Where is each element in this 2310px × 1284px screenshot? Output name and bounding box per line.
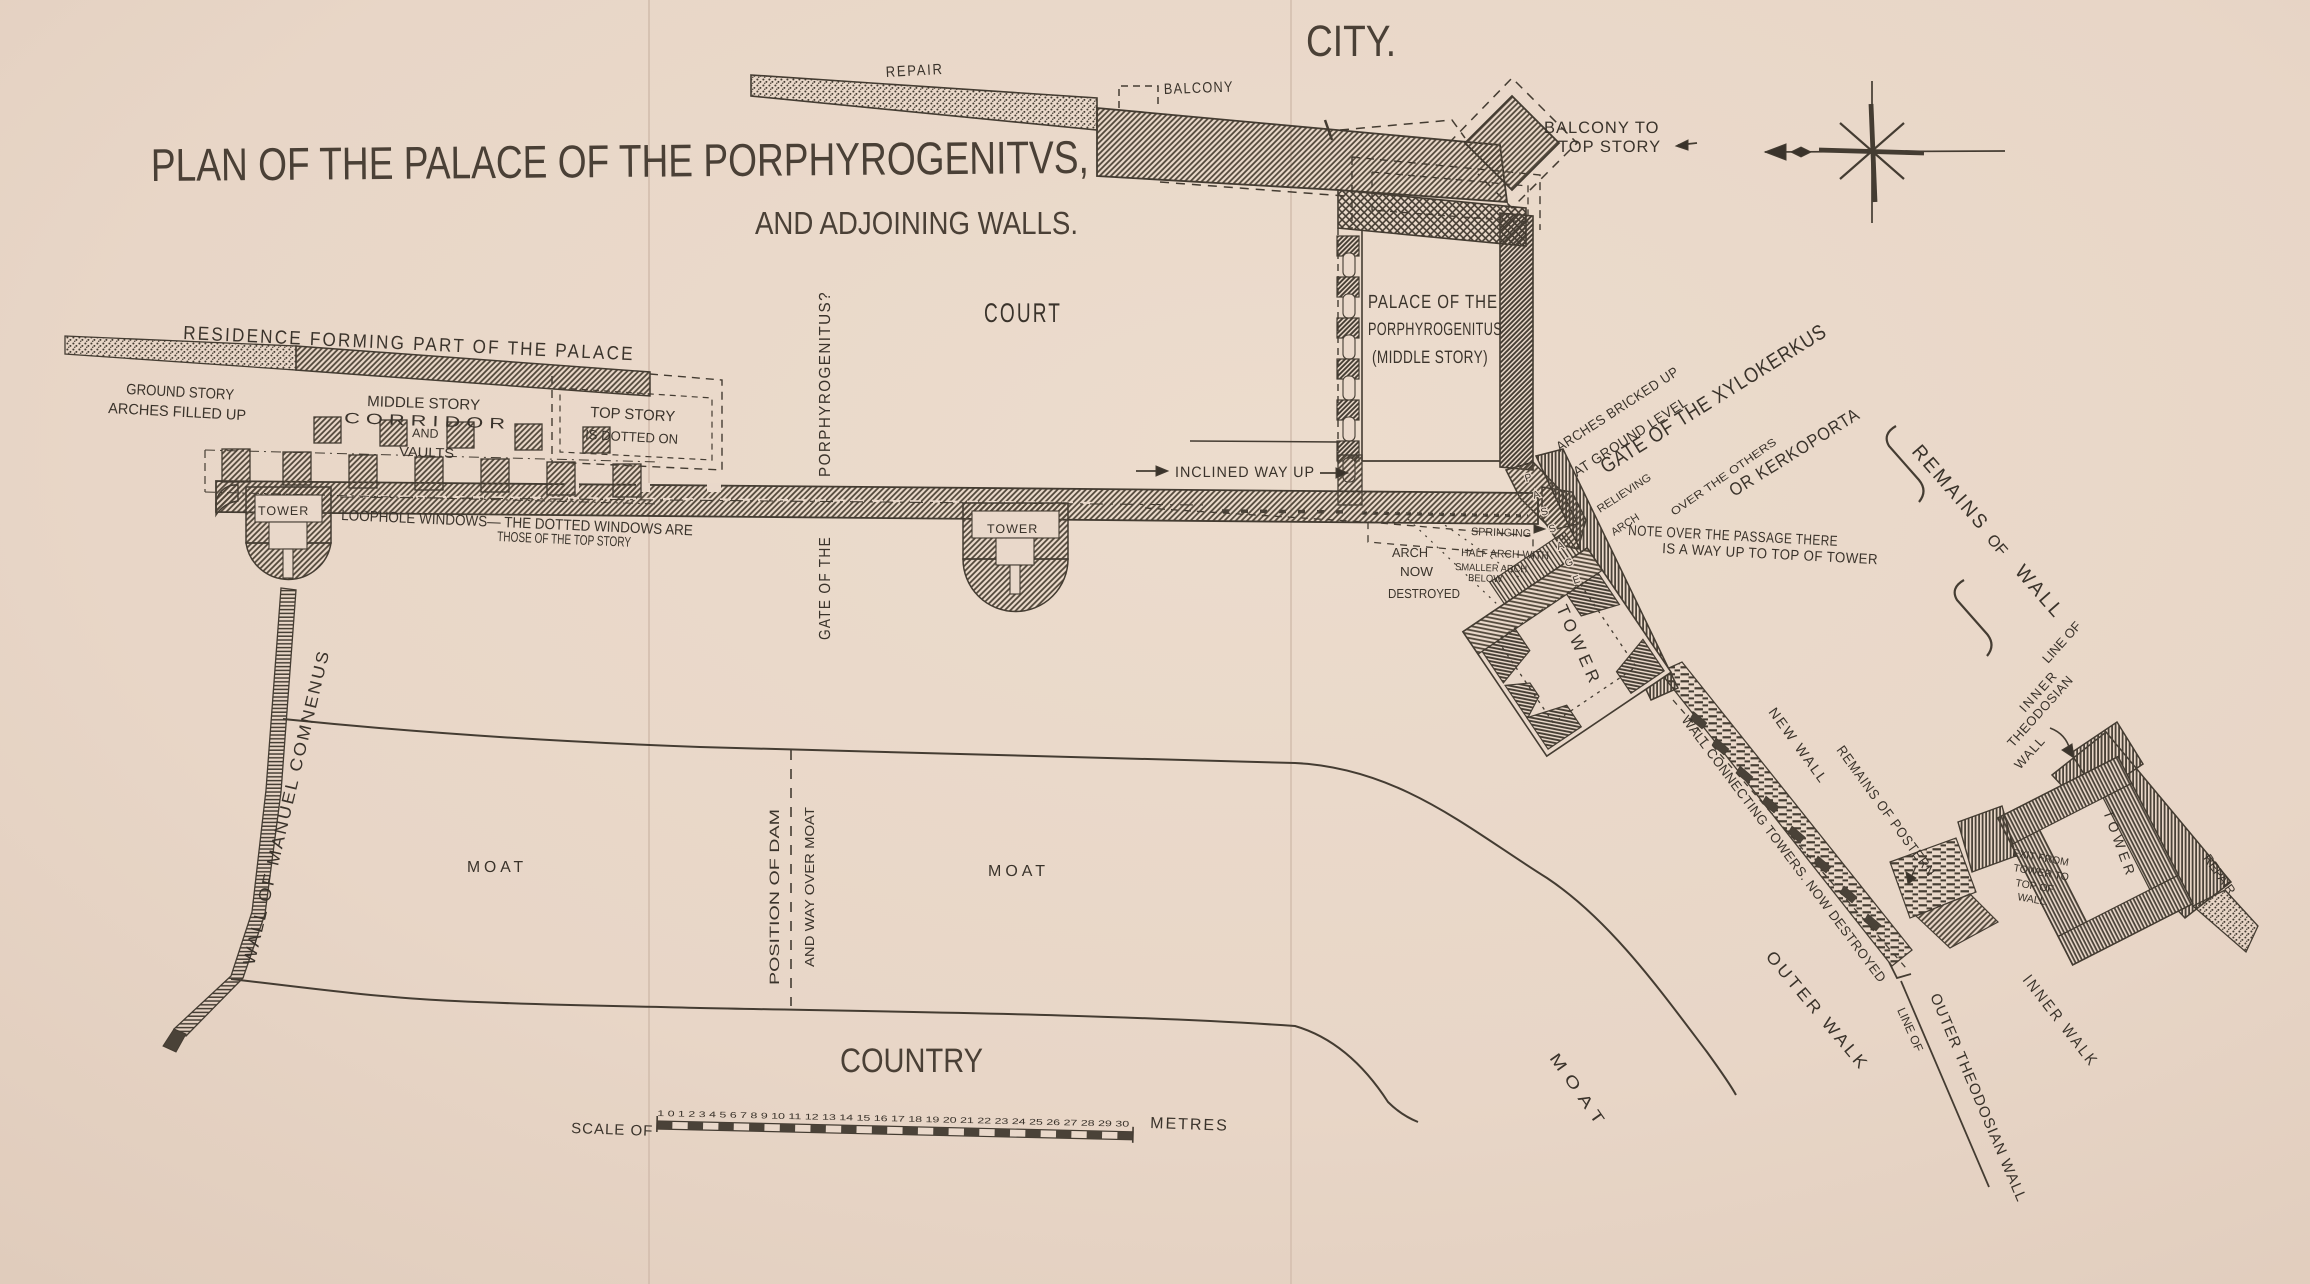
svg-text:AND ADJOINING WALLS.: AND ADJOINING WALLS. xyxy=(755,205,1078,241)
svg-text:GATE OF THE: GATE OF THE xyxy=(817,536,834,640)
svg-text:PALACE OF THE: PALACE OF THE xyxy=(1368,292,1498,313)
svg-text:SCALE OF: SCALE OF xyxy=(571,1120,654,1140)
svg-text:TOP STORY: TOP STORY xyxy=(1558,138,1661,156)
svg-text:TOWER: TOWER xyxy=(258,504,309,518)
svg-text:POSITION OF DAM: POSITION OF DAM xyxy=(767,809,782,985)
svg-text:COUNTRY: COUNTRY xyxy=(840,1042,983,1080)
svg-text:TOWER: TOWER xyxy=(987,522,1038,536)
svg-text:VAULTS: VAULTS xyxy=(399,444,454,461)
svg-text:MOAT: MOAT xyxy=(467,859,527,876)
svg-text:BALCONY: BALCONY xyxy=(1164,79,1235,98)
svg-text:PORPHYROGENITUS?: PORPHYROGENITUS? xyxy=(817,291,834,477)
svg-text:MOAT: MOAT xyxy=(988,863,1049,880)
svg-text:DESTROYED: DESTROYED xyxy=(1388,586,1460,601)
svg-text:AND WAY OVER MOAT: AND WAY OVER MOAT xyxy=(802,807,817,967)
svg-text:BALCONY TO: BALCONY TO xyxy=(1544,119,1659,137)
svg-text:COURT: COURT xyxy=(984,298,1062,328)
svg-text:AND: AND xyxy=(412,426,439,441)
svg-text:PLAN OF THE PALACE OF THE PORP: PLAN OF THE PALACE OF THE PORPHYROGENITV… xyxy=(151,131,1089,191)
svg-text:CITY.: CITY. xyxy=(1306,17,1396,66)
svg-text:ARCH: ARCH xyxy=(1392,545,1428,560)
svg-text:METRES: METRES xyxy=(1150,1115,1229,1135)
svg-text:NOW: NOW xyxy=(1400,564,1434,579)
svg-text:INCLINED WAY UP: INCLINED WAY UP xyxy=(1175,464,1315,481)
svg-text:PORPHYROGENITUS: PORPHYROGENITUS xyxy=(1368,319,1502,339)
svg-text:BELOW: BELOW xyxy=(1468,573,1503,585)
svg-text:(MIDDLE STORY): (MIDDLE STORY) xyxy=(1372,347,1488,367)
svg-text:SPRINGING: SPRINGING xyxy=(1471,526,1531,540)
svg-text:REPAIR: REPAIR xyxy=(885,61,944,81)
